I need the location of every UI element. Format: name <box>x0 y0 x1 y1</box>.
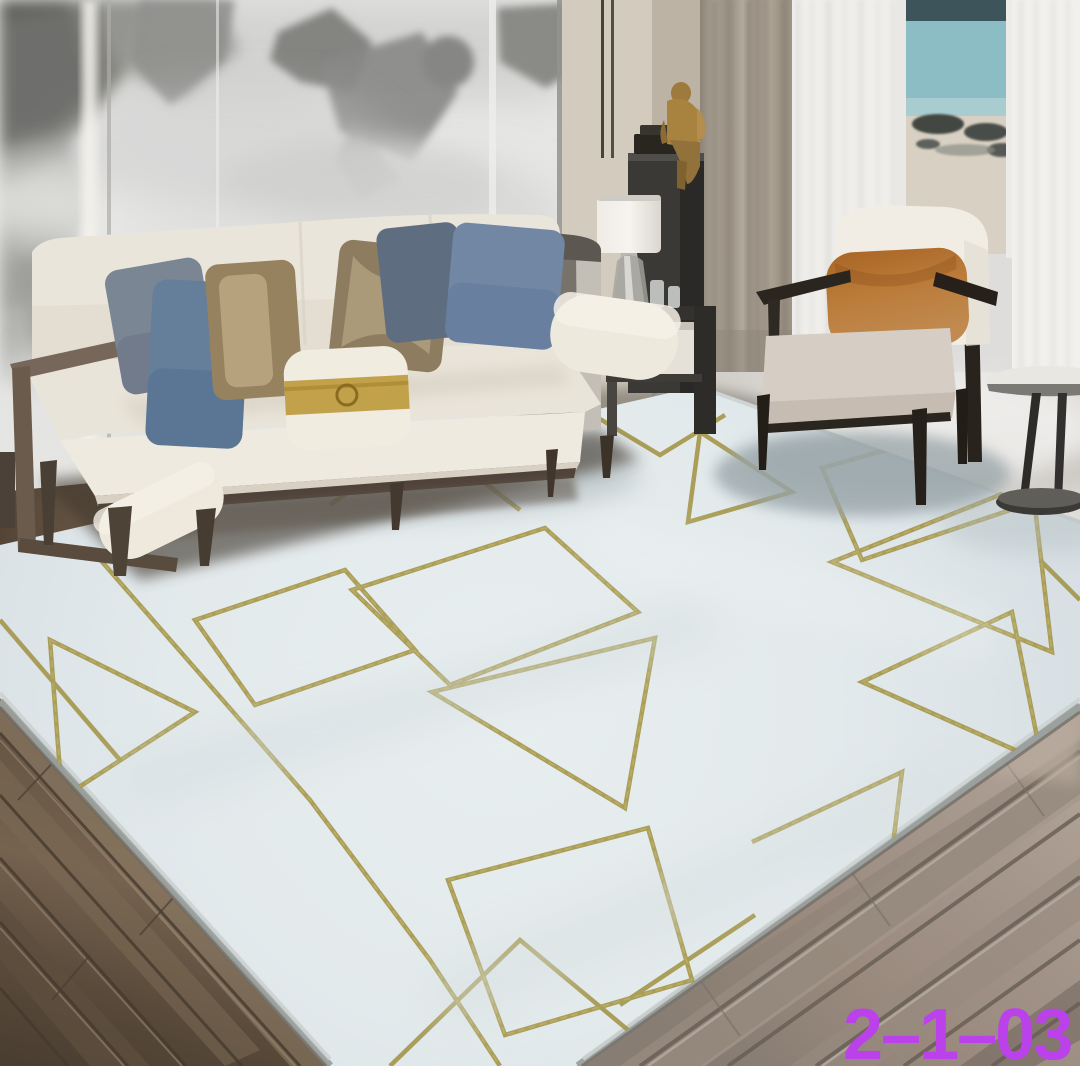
svg-text:2–1–03: 2–1–03 <box>843 995 1071 1066</box>
